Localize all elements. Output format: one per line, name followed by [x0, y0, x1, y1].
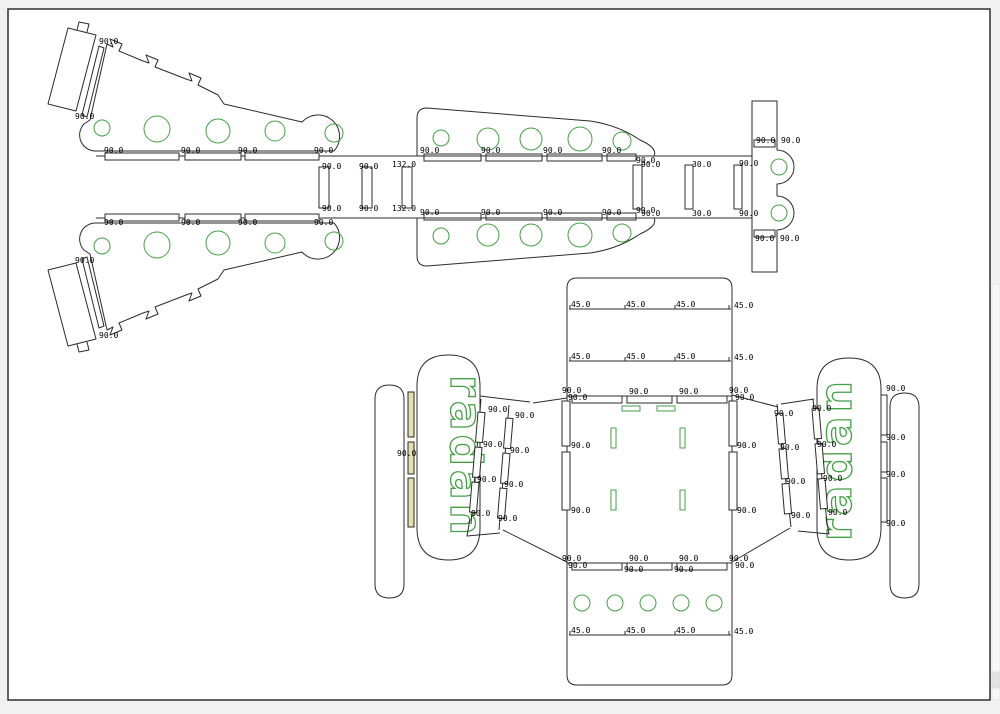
dimension-label: 90.0 [641, 160, 660, 169]
dimension-label: 90.0 [886, 433, 905, 442]
edge-slot [881, 442, 887, 472]
dimension-label: 90.0 [104, 146, 123, 155]
dimension-label: 90.0 [629, 387, 648, 396]
dimension-label: 90.0 [755, 234, 774, 243]
dimension-label: 90.0 [886, 470, 905, 479]
dimension-label: 90.0 [679, 387, 698, 396]
dimension-label: 90.0 [679, 554, 698, 563]
dimension-label: 90.0 [791, 511, 810, 520]
dimension-label: 90.0 [314, 146, 333, 155]
dimension-label: 90.0 [737, 441, 756, 450]
tan-slot [408, 442, 414, 474]
dimension-label: 90.0 [75, 112, 94, 121]
dimension-label: 90.0 [322, 162, 341, 171]
dimension-label: 90.0 [99, 331, 118, 340]
dimension-label: 90.0 [181, 146, 200, 155]
dimension-label: 90.0 [238, 146, 257, 155]
dimension-label: 90.0 [504, 480, 523, 489]
scrollbar-thumb[interactable] [992, 672, 1000, 688]
dimension-label: 132.0 [392, 204, 416, 213]
edge-slot [881, 395, 887, 435]
dimension-label: 90.0 [481, 208, 500, 217]
dimension-label: 90.0 [543, 208, 562, 217]
dimension-label: 45.0 [571, 352, 590, 361]
dimension-label: 90.0 [737, 506, 756, 515]
dimension-label: 90.0 [735, 393, 754, 402]
drawing-canvas[interactable]: radan radan 90.090.090.090.090.090.090.0… [0, 0, 1000, 714]
dimension-label: 90.0 [471, 509, 490, 518]
dimension-label: 90.0 [543, 146, 562, 155]
dimension-label: 90.0 [420, 146, 439, 155]
dimension-label: 90.0 [181, 218, 200, 227]
tan-slot [408, 478, 414, 527]
dimension-label: 45.0 [676, 626, 695, 635]
dimension-label: 90.0 [571, 441, 590, 450]
dimension-label: 45.0 [734, 353, 753, 362]
dimension-label: 90.0 [322, 204, 341, 213]
dimension-label: 45.0 [626, 300, 645, 309]
dimension-label: 90.0 [629, 554, 648, 563]
dimension-label: 90.0 [314, 218, 333, 227]
dimension-label: 90.0 [571, 506, 590, 515]
dimension-label: 45.0 [571, 626, 590, 635]
dimension-label: 90.0 [481, 146, 500, 155]
sheet-border [8, 9, 990, 700]
dimension-label: 45.0 [626, 352, 645, 361]
dimension-label: 90.0 [674, 565, 693, 574]
dimension-label: 90.0 [735, 561, 754, 570]
tan-slot [408, 392, 414, 437]
dimension-label: 90.0 [774, 409, 793, 418]
dimension-label: 90.0 [104, 218, 123, 227]
dimension-label: 45.0 [676, 352, 695, 361]
dimension-label: 45.0 [734, 627, 753, 636]
dimension-label: 90.0 [823, 474, 842, 483]
dimension-label: 90.0 [510, 446, 529, 455]
dimension-label: 90.0 [641, 209, 660, 218]
dimension-label: 90.0 [75, 256, 94, 265]
dimension-label: 90.0 [238, 218, 257, 227]
dimension-label: 90.0 [817, 440, 836, 449]
dimension-label: 90.0 [483, 440, 502, 449]
application-window: radan radan 90.090.090.090.090.090.090.0… [0, 0, 1000, 714]
dimension-label: 90.0 [498, 514, 517, 523]
dimension-label: 90.0 [780, 443, 799, 452]
dimension-label: 30.0 [692, 209, 711, 218]
dimension-label: 90.0 [756, 136, 775, 145]
dimension-label: 90.0 [624, 565, 643, 574]
dimension-label: 90.0 [886, 519, 905, 528]
dimension-label: 90.0 [568, 393, 587, 402]
dimension-label: 90.0 [886, 384, 905, 393]
dimension-label: 90.0 [781, 136, 800, 145]
dimension-label: 90.0 [739, 159, 758, 168]
dimension-label: 90.0 [477, 475, 496, 484]
dimension-label: 45.0 [734, 301, 753, 310]
dimension-label: 90.0 [359, 204, 378, 213]
dimension-label: 45.0 [676, 300, 695, 309]
dimension-label: 90.0 [828, 508, 847, 517]
dimension-label: 90.0 [812, 404, 831, 413]
vertical-scrollbar[interactable] [992, 284, 1000, 700]
dimension-label: 30.0 [692, 160, 711, 169]
dimension-label: 90.0 [515, 411, 534, 420]
dimension-label: 90.0 [602, 146, 621, 155]
dimension-label: 45.0 [571, 300, 590, 309]
dimension-label: 90.0 [99, 37, 118, 46]
dimension-label: 90.0 [780, 234, 799, 243]
dimension-label: 45.0 [626, 626, 645, 635]
dimension-label: 90.0 [568, 561, 587, 570]
dimension-label: 90.0 [397, 449, 416, 458]
dimension-label: 90.0 [739, 209, 758, 218]
dimension-label: 90.0 [359, 162, 378, 171]
dimension-label: 132.0 [392, 160, 416, 169]
dimension-label: 90.0 [602, 208, 621, 217]
dimension-label: 90.0 [420, 208, 439, 217]
dimension-label: 90.0 [786, 477, 805, 486]
dimension-label: 90.0 [488, 405, 507, 414]
edge-slot [881, 478, 887, 522]
